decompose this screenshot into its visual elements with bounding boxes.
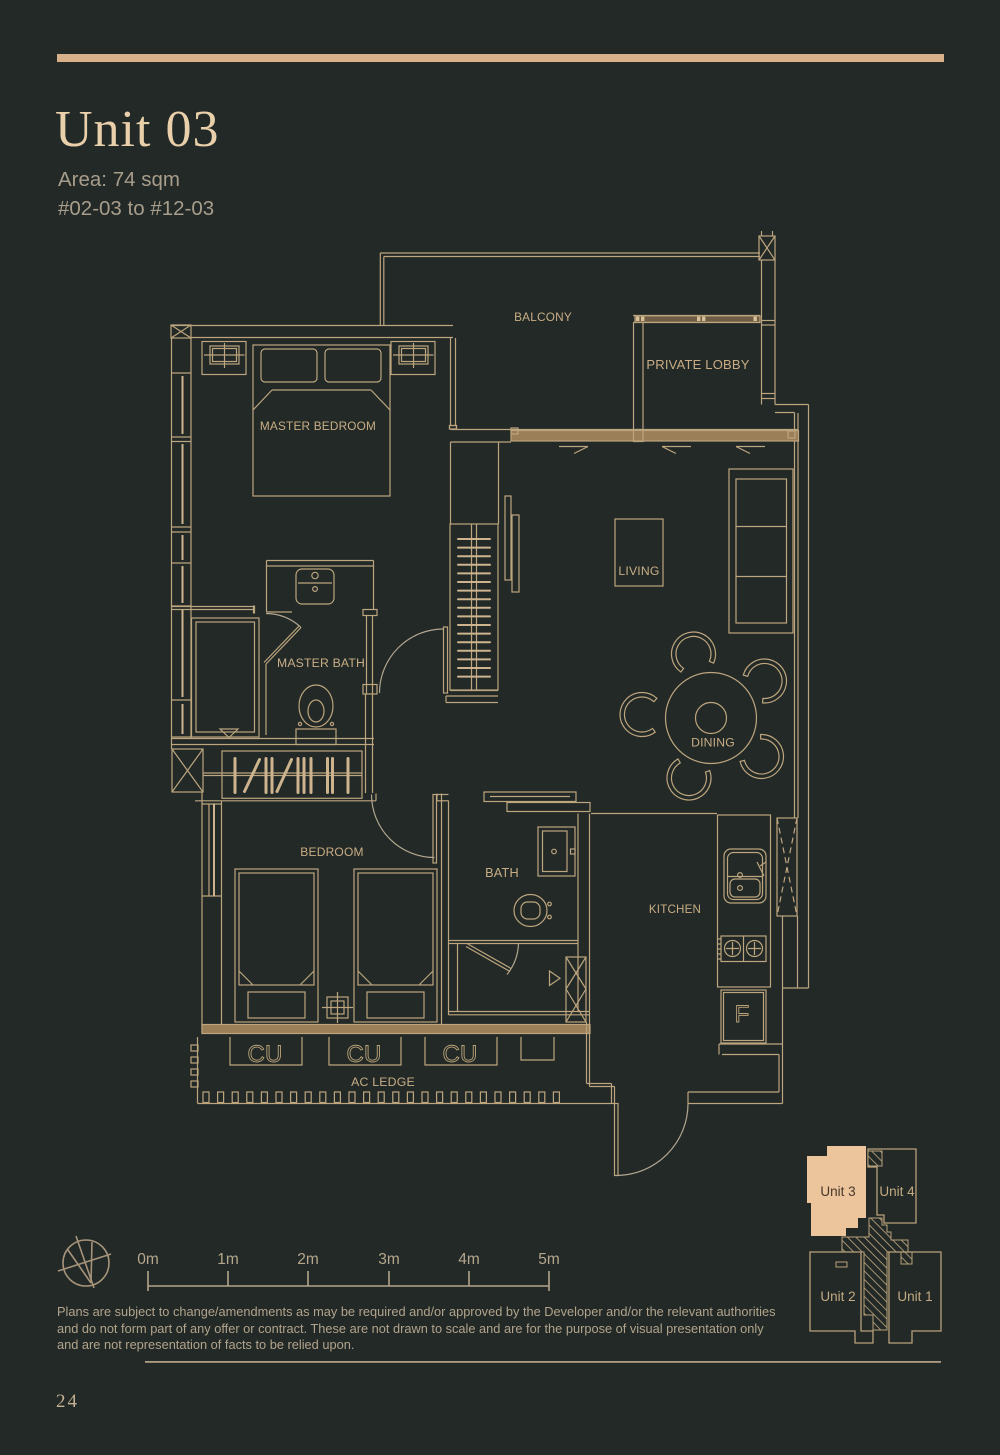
svg-text:1m: 1m: [217, 1251, 239, 1268]
svg-text:CU: CU: [346, 1041, 381, 1068]
svg-text:CU: CU: [247, 1041, 282, 1068]
svg-text:Unit 4: Unit 4: [879, 1184, 915, 1199]
svg-text:Area: 74 sqm: Area: 74 sqm: [58, 168, 180, 191]
svg-text:5m: 5m: [538, 1251, 560, 1268]
svg-text:AC LEDGE: AC LEDGE: [351, 1075, 415, 1089]
svg-text:BATH: BATH: [485, 866, 519, 880]
svg-text:BALCONY: BALCONY: [514, 310, 572, 324]
svg-text:MASTER BEDROOM: MASTER BEDROOM: [260, 419, 376, 433]
svg-text:24: 24: [56, 1391, 79, 1412]
svg-text:4m: 4m: [458, 1251, 480, 1268]
svg-text:Unit 03: Unit 03: [55, 101, 219, 158]
svg-text:2m: 2m: [297, 1251, 319, 1268]
svg-text:3m: 3m: [378, 1251, 400, 1268]
svg-text:and are not representation of: and are not representation of facts to b…: [57, 1337, 354, 1352]
svg-text:Unit 3: Unit 3: [820, 1184, 855, 1199]
svg-text:and do not form part of any of: and do not form part of any offer or con…: [57, 1321, 764, 1336]
svg-text:DINING: DINING: [691, 736, 735, 750]
svg-text:PRIVATE LOBBY: PRIVATE LOBBY: [646, 357, 749, 372]
svg-text:Plans are subject to change/am: Plans are subject to change/amendments a…: [57, 1304, 775, 1319]
svg-text:KITCHEN: KITCHEN: [649, 903, 701, 916]
svg-text:LIVING: LIVING: [618, 564, 659, 578]
svg-text:MASTER BATH: MASTER BATH: [277, 656, 365, 670]
svg-text:Unit 2: Unit 2: [820, 1289, 855, 1304]
svg-text:F: F: [735, 1001, 750, 1028]
svg-text:Unit 1: Unit 1: [897, 1289, 932, 1304]
svg-text:CU: CU: [442, 1041, 477, 1068]
svg-text:0m: 0m: [137, 1251, 159, 1268]
svg-text:BEDROOM: BEDROOM: [300, 845, 363, 859]
svg-text:#02-03 to #12-03: #02-03 to #12-03: [58, 197, 214, 220]
